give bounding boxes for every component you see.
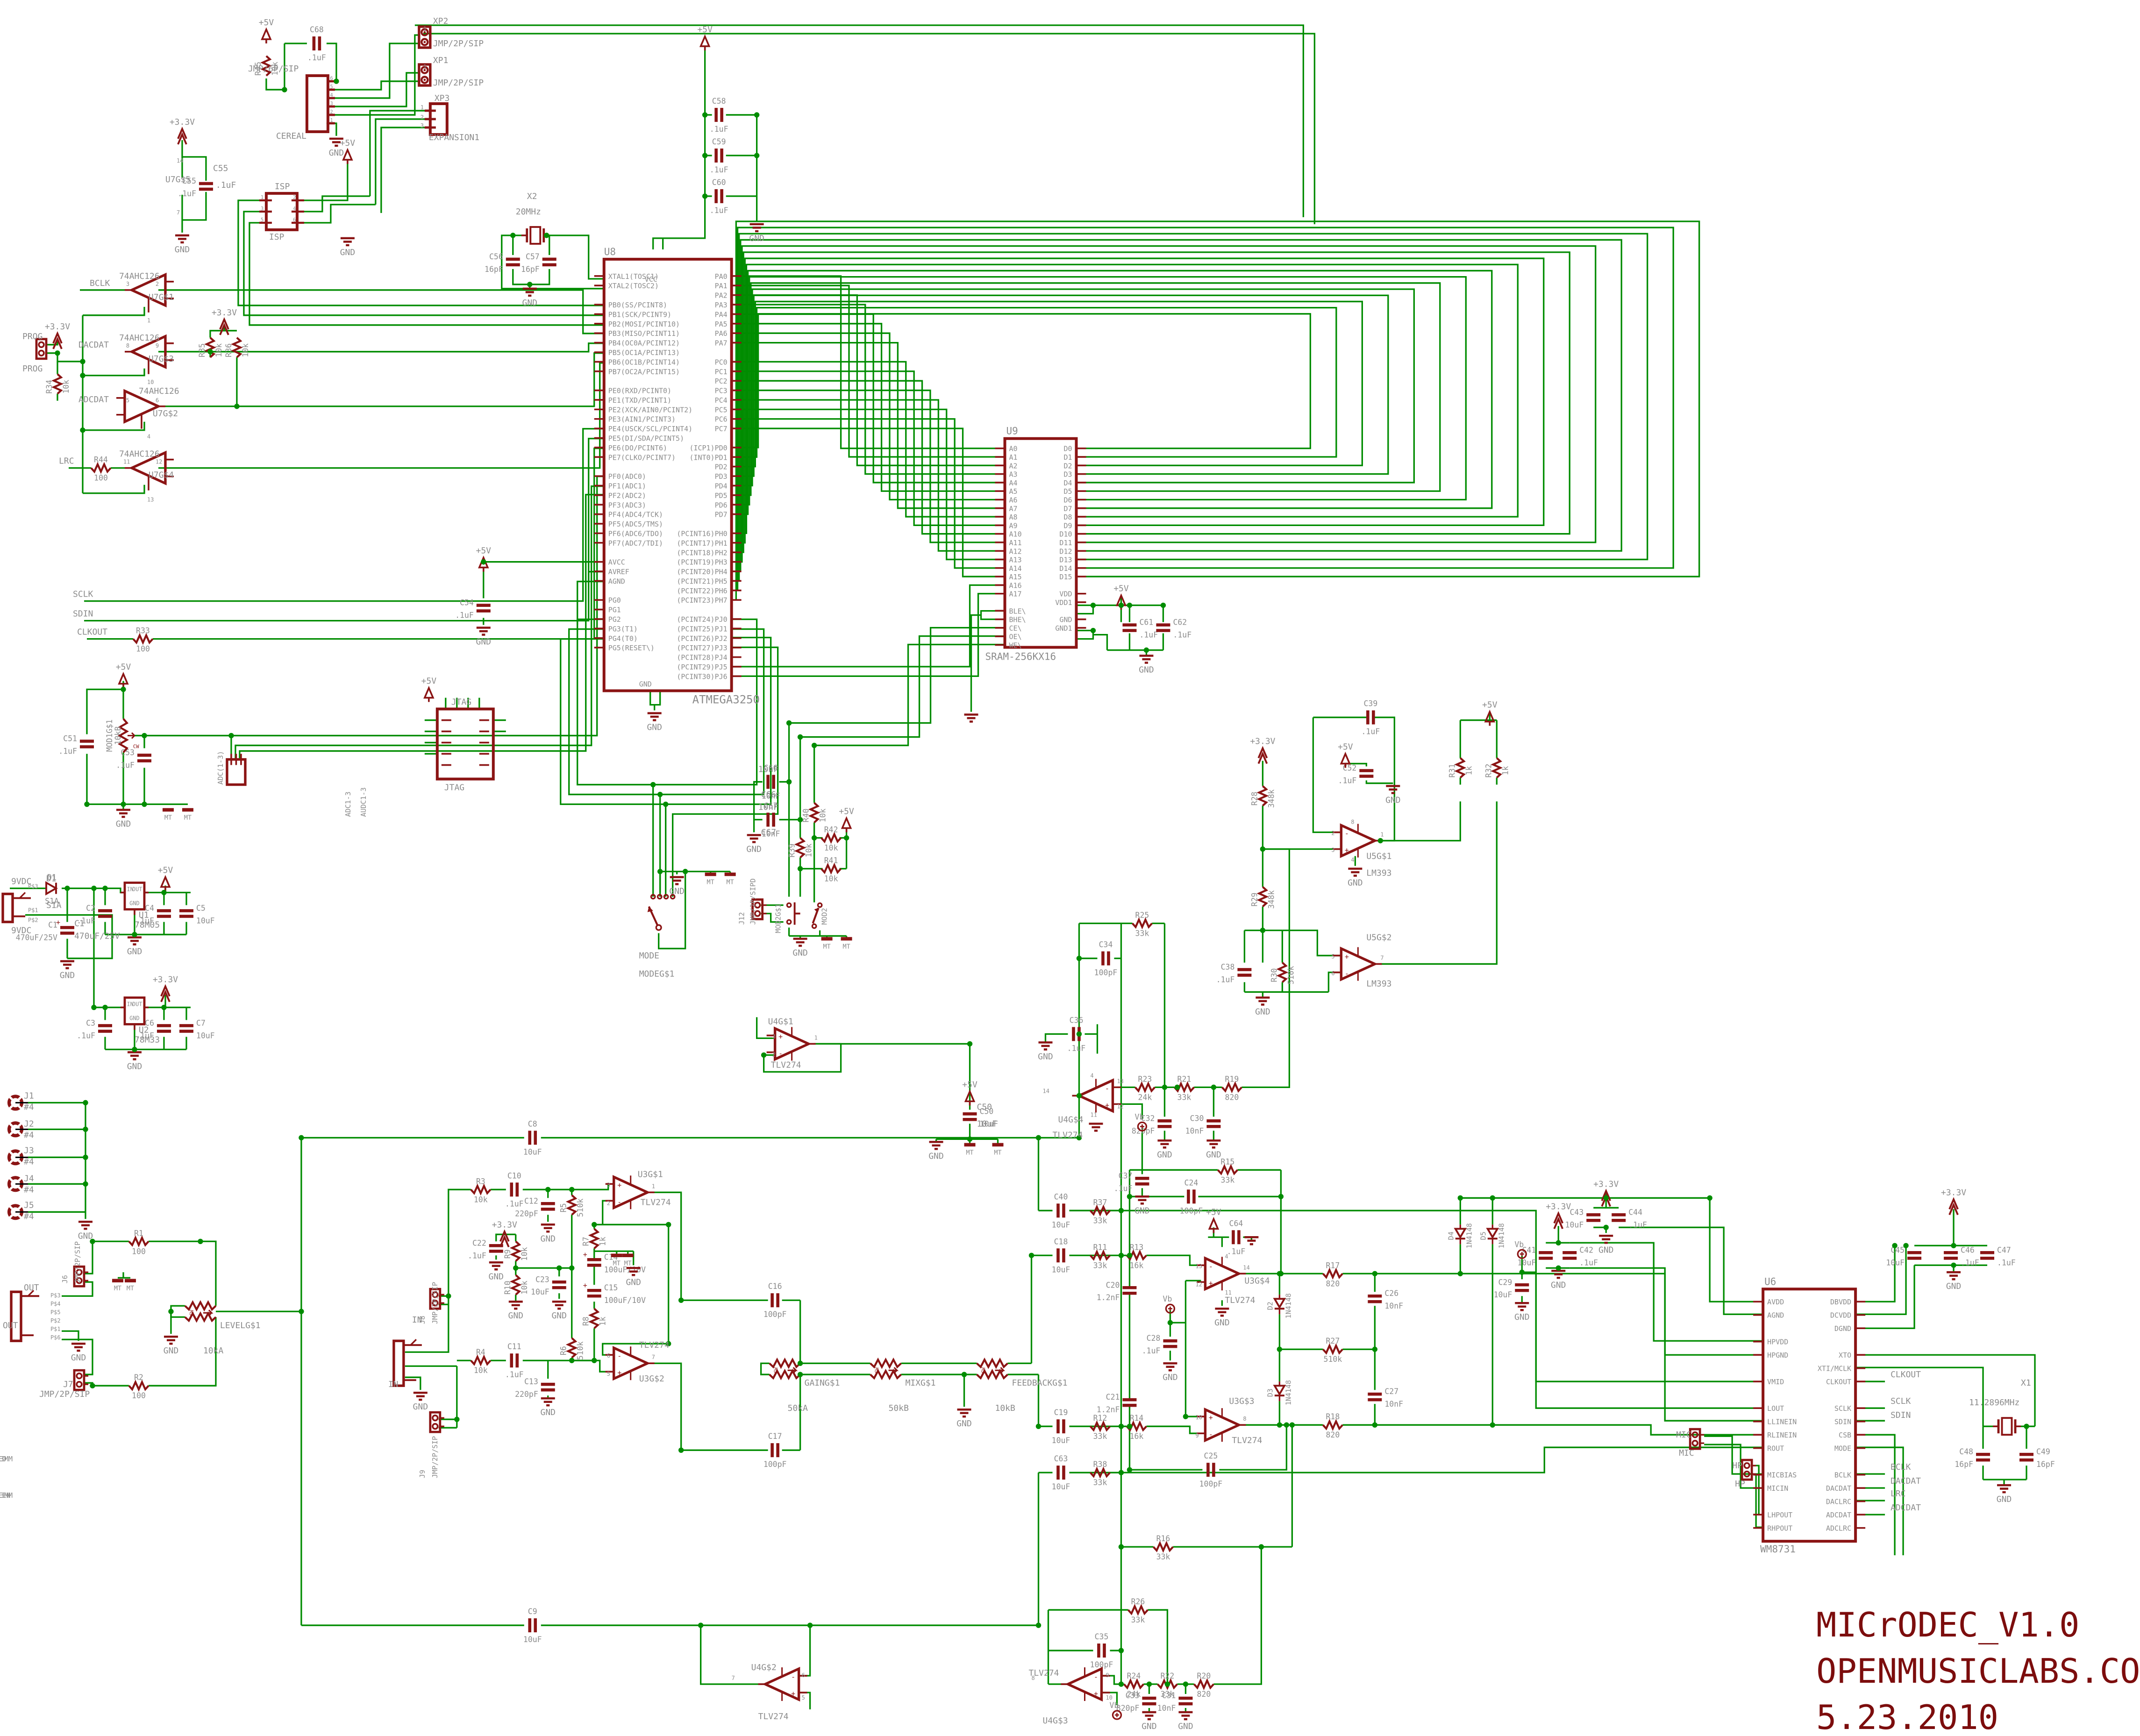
pin-label: PC5 <box>715 406 728 414</box>
pin-label: A17 <box>1009 590 1022 598</box>
label: 10kB <box>995 1403 1015 1413</box>
gnd-label: GND <box>1139 665 1154 675</box>
label: .1uF <box>307 53 326 62</box>
gnd-label: GND <box>1946 1281 1961 1291</box>
junction-dot <box>90 1239 95 1244</box>
label: C33 <box>1126 1691 1140 1700</box>
junction-dot <box>161 890 166 895</box>
label: C23 <box>535 1275 549 1284</box>
capacitor-C37: C37.1uF <box>1114 1171 1149 1193</box>
label: R2 <box>134 1373 143 1382</box>
connector-prog <box>36 339 46 359</box>
wire <box>1146 1255 1201 1265</box>
resistor-R37: R3733k <box>1090 1198 1110 1225</box>
wire <box>46 353 83 362</box>
label: P$6 <box>50 1334 61 1341</box>
label: OUT <box>132 1001 143 1007</box>
label: 100 <box>132 1247 146 1256</box>
label: C50 <box>977 1102 992 1112</box>
label: .1uF <box>1338 776 1357 785</box>
pin-label: (PCINT21)PH5 <box>677 577 727 585</box>
label: P$2 <box>50 1317 61 1324</box>
diode-glyph <box>46 882 56 894</box>
label: 11 <box>1090 1111 1097 1118</box>
resistor-R17: R17820 <box>1323 1261 1342 1288</box>
pin-label: D12 <box>1059 547 1072 555</box>
junction-dot <box>1036 1423 1041 1429</box>
ground: GND <box>1038 1042 1053 1061</box>
pin-label: A4 <box>1009 479 1018 487</box>
pivot <box>656 925 661 930</box>
label: C59 <box>712 137 726 146</box>
label: C29 <box>1498 1278 1512 1287</box>
mt-label: MT <box>823 943 830 950</box>
led-green: GREENLED3MM <box>0 1491 13 1501</box>
pin-label: D0 <box>1063 445 1072 453</box>
pin-label: (PCINT22)PH6 <box>677 587 727 595</box>
label: C5 <box>196 904 206 912</box>
pin-label: PF6(ADC6/TDO) <box>608 529 663 538</box>
power-3v3: +3.3V <box>492 1220 517 1247</box>
junction-dot <box>812 835 817 840</box>
mt-pad: MT <box>821 939 833 950</box>
label: R39 <box>788 844 797 858</box>
power-arrow <box>220 320 228 335</box>
resistor-R41: R4110k <box>821 856 841 883</box>
label: .1uF <box>1628 1220 1647 1229</box>
label: 10k <box>62 380 71 394</box>
resistor-glyph <box>591 1229 598 1248</box>
label: U3G$2 <box>639 1374 664 1384</box>
label: U2 <box>139 1025 149 1035</box>
pin-label: MICIN <box>1767 1484 1788 1493</box>
gnd-label: GND <box>928 1151 943 1161</box>
pot-wiper-arrow <box>128 733 135 739</box>
capacitor-C27: C2710nF <box>1368 1387 1403 1409</box>
pin-label: HPGND <box>1767 1351 1788 1359</box>
label: 1 <box>261 195 264 200</box>
label: U3G$4 <box>1244 1276 1270 1286</box>
pot-track <box>185 1302 216 1309</box>
capacitor-C60: C60.1uF <box>710 178 728 215</box>
label: 50kA <box>788 1403 808 1413</box>
pot-GAING$1: CWGAING$150kA <box>770 1359 840 1413</box>
resistor-glyph <box>133 635 153 643</box>
pin-label: XTO <box>1839 1351 1851 1359</box>
gnd-label: GND <box>1514 1312 1529 1322</box>
pin-label: (PCINT20)PH4 <box>677 568 727 576</box>
resistor-glyph <box>1457 758 1464 778</box>
net-label: BCLK <box>90 278 110 288</box>
pin-label: DGND <box>1834 1324 1851 1333</box>
junction-dot <box>1556 1266 1561 1271</box>
label: 13 <box>1117 1078 1123 1084</box>
pin-label: D14 <box>1059 564 1072 573</box>
power-5v: +5V <box>259 18 274 43</box>
ground <box>964 715 978 722</box>
label: C46 <box>1961 1245 1975 1254</box>
label: LED3MM <box>0 1491 13 1500</box>
mt-label: MT <box>707 878 714 886</box>
label: R4 <box>476 1348 485 1357</box>
label: 100 <box>136 645 150 654</box>
pin-label: D9 <box>1063 521 1072 530</box>
label: J2 <box>24 1119 34 1129</box>
label: 10uF <box>1518 1258 1536 1267</box>
label: + <box>791 1690 795 1698</box>
power-arrow <box>161 877 170 887</box>
junction-dot <box>666 1222 671 1227</box>
label: 10uF <box>977 1119 997 1129</box>
label: 4 <box>1225 1253 1228 1259</box>
label: .1uF <box>77 1031 95 1040</box>
resistor-R23: R2324k <box>1135 1074 1155 1102</box>
label: P$3 <box>28 883 38 889</box>
mt-label: MT <box>842 943 850 950</box>
crystal-X1 <box>1993 1418 2021 1435</box>
capacitor-C58: C58.1uF <box>710 97 728 134</box>
label: 13 <box>1195 1263 1202 1269</box>
label: 33k <box>1177 1093 1191 1102</box>
ground: GND <box>1163 1363 1177 1382</box>
label: C28 <box>1147 1334 1161 1343</box>
addr-bus-wire <box>732 419 1005 568</box>
resistor-glyph <box>1323 1270 1342 1277</box>
gnd-label: GND <box>1214 1318 1229 1328</box>
junction-dot <box>1277 1422 1282 1427</box>
power-5v: +5V <box>116 662 131 688</box>
label: 10uF <box>1052 1265 1070 1274</box>
label: .1uF <box>1139 631 1158 640</box>
connector-hp <box>1742 1460 1756 1480</box>
label: C38 <box>1221 962 1235 971</box>
junction-dot <box>1458 1271 1463 1276</box>
pin-label: A13 <box>1009 556 1022 564</box>
capacitor-C38: C38.1uF <box>1216 962 1252 984</box>
junction-dot <box>1707 1195 1712 1201</box>
diode-glyph <box>1275 1386 1284 1394</box>
power-label: +3.3V <box>1250 737 1275 747</box>
label: MIC <box>1676 1430 1691 1440</box>
label: - <box>1105 1084 1109 1093</box>
power-label: +5V <box>839 807 854 817</box>
ground: GND <box>522 289 537 308</box>
resistor-glyph <box>512 1275 520 1295</box>
label: R29 <box>1250 893 1259 907</box>
wire <box>1070 1447 1763 1473</box>
power-arrow <box>1341 754 1349 764</box>
pin-label: D4 <box>1063 479 1072 487</box>
junction-dot <box>80 373 85 378</box>
label: XP3 <box>435 93 449 103</box>
pin-label: A12 <box>1009 547 1022 555</box>
junction-dot <box>1091 628 1096 633</box>
label: P$1 <box>28 907 38 913</box>
junction-dot <box>1284 1422 1289 1427</box>
label: C10 <box>507 1171 521 1180</box>
junction-dot <box>1519 1270 1525 1275</box>
wire <box>83 369 144 376</box>
label: 348k <box>1267 890 1276 909</box>
label: 1.2nF <box>1097 1293 1120 1302</box>
resistor-glyph <box>1259 786 1267 806</box>
label: R40 <box>802 809 811 823</box>
label: TLV274 <box>771 1060 801 1070</box>
power-3v3: +3.3V <box>1250 737 1275 764</box>
label: C20 <box>1106 1281 1120 1289</box>
wire <box>971 615 981 712</box>
label: 4 <box>330 92 333 98</box>
mt-pad: MT <box>112 1281 123 1292</box>
label: 11 <box>123 459 130 465</box>
capacitor-C22: C22.1uF <box>468 1238 503 1260</box>
net-label-lrc: LRC <box>59 456 74 466</box>
label: C24 <box>1184 1178 1198 1187</box>
label: C44 <box>1628 1208 1642 1217</box>
junction-dot <box>650 782 656 787</box>
junction-dot <box>1260 847 1265 852</box>
label: TLV274 <box>1225 1295 1255 1305</box>
label: 10k <box>241 343 250 357</box>
resistor-glyph <box>1493 758 1501 778</box>
resistor-glyph <box>1323 1345 1342 1353</box>
label: R23 <box>1138 1074 1152 1083</box>
pin-label: PB0(SS/PCINT8) <box>608 301 667 309</box>
label: 1k <box>1501 766 1510 776</box>
pin-label: DACDAT <box>1826 1484 1851 1493</box>
junction-dot <box>334 78 339 84</box>
gnd-label: GND <box>1038 1052 1053 1061</box>
label: 10uF <box>196 916 215 925</box>
pin-label: A2 <box>1009 462 1018 470</box>
power-5v: +5V <box>839 807 854 832</box>
junction-dot <box>702 153 707 158</box>
pin-label: PC6 <box>715 415 728 424</box>
label: U4G$4 <box>1058 1115 1084 1124</box>
label: WM8731 <box>1760 1544 1796 1555</box>
label: OUT <box>132 886 143 892</box>
opamp: +- <box>1333 947 1382 981</box>
label: 10uF <box>1565 1220 1584 1229</box>
label: VCC <box>645 275 657 284</box>
label: 2 <box>156 281 159 287</box>
pin-label: AVREF <box>608 568 629 576</box>
pin-label: CE\ <box>1009 624 1022 633</box>
junction-dot <box>161 1005 166 1010</box>
label: 2 <box>607 1200 610 1206</box>
gnd-label: GND <box>792 948 807 958</box>
power-label: +3.3V <box>492 1220 517 1230</box>
label: 5 <box>802 1694 805 1701</box>
junction-dot <box>446 1294 451 1299</box>
label: U7G$1 <box>149 292 174 302</box>
junction-dot <box>1119 1470 1124 1475</box>
pin-label: DBVDD <box>1830 1298 1851 1306</box>
label: 4 <box>293 206 296 212</box>
resistor-glyph <box>512 1241 520 1261</box>
resistor-R20: R20820 <box>1194 1672 1213 1699</box>
pin-label: PC4 <box>715 396 728 405</box>
resistor-glyph <box>1153 1543 1173 1551</box>
label: 100pF <box>1094 968 1118 977</box>
label: 33k <box>1093 1432 1107 1441</box>
resistor-R18: R18820 <box>1323 1412 1342 1439</box>
junction-dot <box>1260 928 1265 933</box>
ground: GND <box>541 1398 556 1417</box>
label: 1N4148 <box>1497 1223 1505 1248</box>
wire <box>523 1360 614 1372</box>
label: SRAM-256KX16 <box>985 651 1056 662</box>
junction-dot <box>1175 1085 1180 1090</box>
label: C16 <box>768 1282 782 1291</box>
junction-dot <box>1161 603 1166 608</box>
vb-node: Vb <box>1163 1295 1175 1313</box>
label: - <box>617 1352 621 1360</box>
pin-label: D13 <box>1059 556 1072 564</box>
label: .1uF <box>1997 1258 2016 1267</box>
wire <box>653 46 705 249</box>
ic-U6: AVDDAGNDHPVDDHPGNDVMIDLOUTLLINEINRLINEIN… <box>1753 1289 1865 1541</box>
label: GAING$1 <box>805 1378 840 1388</box>
label: 7 <box>1380 954 1384 961</box>
label: 10k <box>214 343 223 357</box>
label: GND <box>639 680 652 689</box>
capacitor-C7: C710uF <box>179 1018 215 1040</box>
label: R13 <box>1130 1243 1144 1252</box>
junction-dot <box>83 1100 88 1105</box>
jack-body <box>11 1292 21 1341</box>
gnd-label: GND <box>1348 878 1362 888</box>
pin-label: D7 <box>1063 505 1072 513</box>
label: C19 <box>1054 1408 1068 1417</box>
power-label: +3.3V <box>1593 1179 1619 1189</box>
label: 10k <box>474 1195 488 1204</box>
gnd-label: GND <box>164 1346 178 1356</box>
junction-dot <box>761 1053 766 1058</box>
gnd-label: GND <box>340 248 355 257</box>
label: 12 <box>1195 1281 1202 1288</box>
junction-dot <box>698 1622 703 1628</box>
label: R6 <box>559 1346 568 1355</box>
net-label: LRC <box>59 456 74 466</box>
power-arrow <box>842 818 851 828</box>
mt-label: MT <box>114 1285 121 1292</box>
ground: GND <box>1141 1712 1156 1731</box>
pin-label: VMID <box>1767 1378 1784 1386</box>
label: R17 <box>1326 1261 1340 1270</box>
label: 16pF <box>521 265 540 274</box>
junction-dot <box>1127 1194 1132 1199</box>
junction-dot <box>132 1047 137 1052</box>
label: 470uF/25V <box>74 931 120 941</box>
label: 10nF <box>1384 1400 1403 1409</box>
label: 220pF <box>515 1209 538 1218</box>
label: CW <box>875 1367 880 1373</box>
gnd-label: GND <box>127 1061 142 1071</box>
power-arrow <box>262 29 271 39</box>
pin-label: PB2(MOSI/PCINT10) <box>608 320 680 328</box>
junction-dot <box>569 1187 574 1192</box>
ground: GND <box>669 877 684 896</box>
junction-dot <box>299 1135 304 1140</box>
label: R32 <box>1484 764 1493 778</box>
junction-dot <box>1604 1195 1609 1201</box>
label: 1k <box>599 1316 607 1326</box>
label: + <box>1345 846 1349 854</box>
junction-dot <box>1144 647 1149 653</box>
label: 12 <box>156 459 162 465</box>
label: JMP/2P/SIP <box>73 1241 82 1283</box>
ground: GND <box>1134 1196 1149 1216</box>
capacitor-C48: C4816pF <box>1955 1447 1990 1469</box>
label: R9 <box>503 1249 512 1259</box>
net-label: SCLK <box>1890 1396 1911 1406</box>
label: .1uF <box>178 189 196 198</box>
label: 100pF <box>1199 1480 1223 1488</box>
label: .1uF <box>468 1251 486 1260</box>
junction-dot <box>1077 956 1082 961</box>
label: MOD1G$1 <box>105 719 114 752</box>
junction-dot <box>91 886 96 891</box>
gnd-label: GND <box>476 637 491 647</box>
label: - <box>1345 969 1349 978</box>
wire <box>981 611 1005 619</box>
gnd-label: GND <box>116 819 131 829</box>
label: 100pF <box>763 1310 787 1319</box>
wire <box>1282 930 1341 955</box>
wire <box>83 307 144 315</box>
resistor-R25: R2533k <box>1132 911 1152 938</box>
wire <box>1046 1034 1054 1042</box>
pin-label: AVCC <box>608 558 625 567</box>
junction-dot <box>1119 1208 1124 1213</box>
label: PROG <box>22 332 43 342</box>
label: IN <box>388 1380 399 1389</box>
label: 33k <box>1093 1261 1107 1270</box>
label: 220pF <box>515 1390 538 1399</box>
junction-dot <box>55 350 60 356</box>
pad <box>1744 1463 1749 1468</box>
label: C11 <box>507 1342 521 1351</box>
label: 1.2nF <box>1097 1405 1120 1414</box>
label: R34 <box>45 380 54 394</box>
label: R18 <box>1326 1412 1340 1421</box>
label: ADC(1-3) <box>216 751 225 784</box>
label: U7G$5 <box>165 175 191 185</box>
label: U3G$1 <box>638 1169 663 1179</box>
ground: GND <box>1514 1303 1529 1322</box>
title-line-1: MICrODEC_V1.0 <box>1816 1605 2079 1644</box>
label: 100pF <box>1180 1206 1203 1215</box>
label: .1uF <box>710 165 728 174</box>
label: C34 <box>1099 940 1113 949</box>
pin-label: PD5 <box>715 491 728 500</box>
resistor-glyph <box>568 1195 576 1215</box>
label: 10nF <box>1185 1126 1204 1135</box>
label: JMP/2P/SIP <box>431 1282 439 1324</box>
capacitor-C51: C51.1uF <box>58 734 94 756</box>
pin-label: PA5 <box>715 320 728 328</box>
label: C63 <box>1054 1454 1068 1463</box>
capacitor-C20: C201.2nF <box>1097 1281 1137 1302</box>
mt-label: MT <box>164 814 172 822</box>
label: 10uF <box>523 1147 542 1156</box>
label: U9 <box>1006 426 1018 437</box>
label: 50kB <box>889 1403 909 1413</box>
ground: GND <box>476 628 491 647</box>
label: 16k <box>1130 1261 1144 1270</box>
ground: GND <box>647 713 662 733</box>
